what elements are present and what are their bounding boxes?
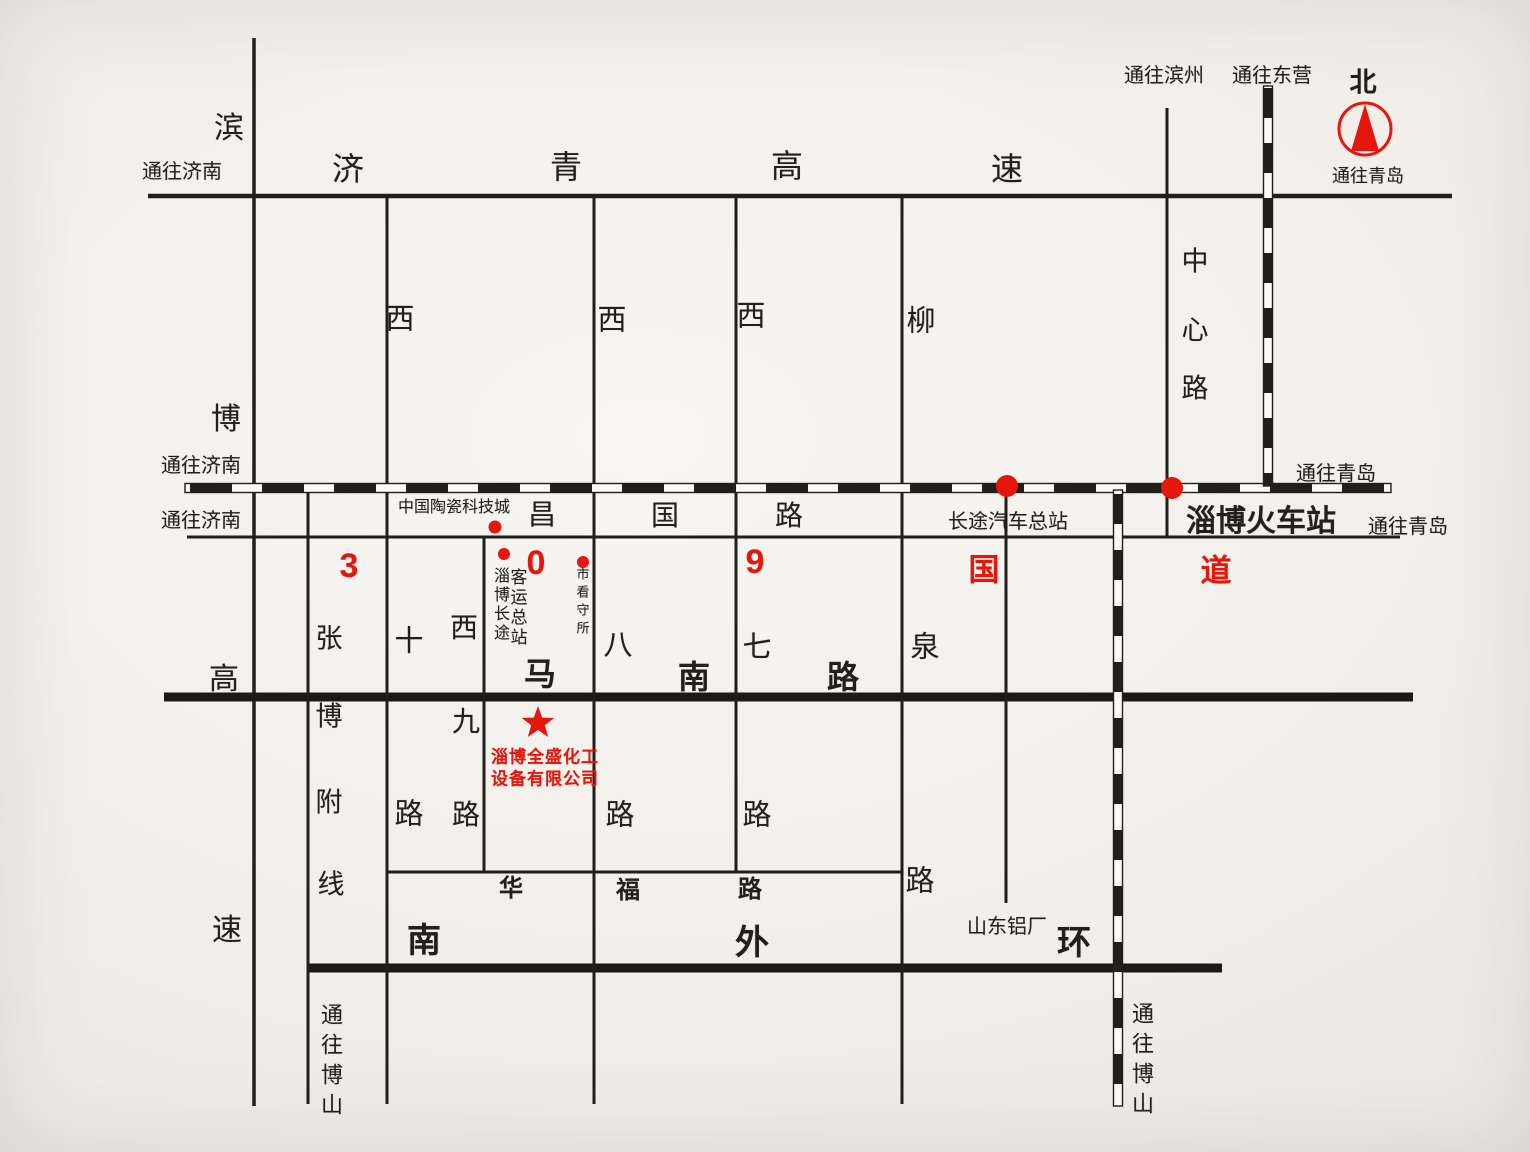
jiqing-char-qing: 青: [550, 151, 582, 183]
west9-char-lu: 路: [452, 801, 480, 829]
ring-char-nan: 南: [407, 924, 441, 958]
g309-char-0: 0: [527, 546, 546, 580]
changguo-char-lu: 路: [775, 502, 803, 530]
railway-station-label: 淄博火车站: [1186, 507, 1336, 537]
jiqing-char-ji: 济: [332, 153, 364, 185]
west10-char-lu: 路: [394, 801, 423, 830]
center-road-char-zhong: 中: [1182, 249, 1209, 276]
west10-char-shi: 十: [394, 628, 423, 657]
manan-char-lu: 路: [827, 661, 859, 693]
changguo-char-chang: 昌: [528, 501, 556, 529]
to-jinan-railway: 通往济南: [161, 456, 241, 476]
to-qingdao-railway: 通往青岛: [1296, 464, 1376, 484]
map-canvas: 滨通往济南济青高速通往滨州通往东营北通往青岛中心路西西西柳通往济南通往青岛通往济…: [0, 0, 1530, 1152]
g309-char-9: 9: [746, 545, 765, 579]
center-road-char-xin: 心: [1182, 318, 1209, 345]
coach-terminal-col2: 客运总站: [509, 568, 526, 648]
zhangbo-char-fu: 附: [316, 790, 343, 817]
aluminum-plant: 山东铝厂: [967, 917, 1047, 937]
zhangbo-char-xian: 线: [318, 872, 345, 899]
changguo-char-guo: 国: [651, 502, 679, 530]
liuquan-char-liu: 柳: [906, 308, 935, 337]
west9-char-xi: 西: [450, 614, 478, 642]
to-jinan-changguo: 通往济南: [161, 511, 241, 531]
west9-char-jiu: 九: [452, 708, 480, 736]
liuquan-char-lu: 路: [905, 868, 934, 897]
to-jinan-expressway: 通往济南: [142, 162, 222, 182]
g309-char-3: 3: [340, 549, 359, 583]
manan-char-ma: 马: [524, 658, 556, 690]
west8-char-xi: 西: [597, 307, 626, 336]
g309-char-dao: 道: [1201, 556, 1232, 587]
bus-terminal-label: 长途汽车总站: [948, 512, 1068, 532]
binbo-char-su: 速: [212, 916, 242, 946]
to-boshan-west: 通往博山: [319, 1003, 341, 1123]
binbo-char-bo: 博: [211, 405, 241, 435]
west7-char-xi: 西: [736, 303, 765, 332]
g309-char-guo: 国: [969, 555, 1000, 586]
map-labels: 滨通往济南济青高速通往滨州通往东营北通往青岛中心路西西西柳通往济南通往青岛通往济…: [0, 0, 1530, 1152]
north-char: 北: [1350, 70, 1377, 97]
binbo-char-gao: 高: [209, 665, 239, 695]
center-road-char-lu: 路: [1182, 376, 1209, 403]
huafu-char-fu: 福: [616, 879, 640, 903]
to-dongying: 通往东营: [1232, 66, 1312, 86]
west7-char-lu: 路: [742, 802, 771, 831]
huafu-char-hua: 华: [499, 877, 523, 901]
detention-house: 市看守所: [576, 567, 589, 639]
company-name-line1: 淄博全盛化工: [491, 749, 599, 766]
huafu-char-lu: 路: [738, 878, 762, 902]
to-qingdao-compass: 通往青岛: [1332, 167, 1404, 185]
jiqing-char-gao: 高: [771, 150, 803, 182]
ceramics-city: 中国陶瓷科技城: [398, 500, 510, 516]
ring-char-huan: 环: [1057, 926, 1091, 960]
company-name-line2: 设备有限公司: [491, 771, 599, 788]
to-qingdao-changguo: 通往青岛: [1368, 517, 1448, 537]
to-boshan-east: 通往博山: [1130, 1002, 1152, 1122]
ring-char-wai: 外: [735, 926, 769, 960]
coach-terminal-col1: 淄博长途: [491, 567, 507, 643]
west7-char-qi: 七: [742, 634, 771, 663]
jiqing-char-su: 速: [991, 153, 1023, 185]
liuquan-char-quan: 泉: [910, 634, 939, 663]
zhangbo-char-bo: 博: [316, 704, 343, 731]
manan-char-nan: 南: [678, 661, 710, 693]
to-binzhou: 通往滨州: [1124, 66, 1204, 86]
zhangbo-char-zhang: 张: [316, 626, 343, 653]
west8-char-ba: 八: [603, 632, 632, 661]
west8-char-lu: 路: [605, 802, 634, 831]
binbo-char-bin: 滨: [214, 114, 244, 144]
west10-char-xi: 西: [385, 306, 414, 335]
